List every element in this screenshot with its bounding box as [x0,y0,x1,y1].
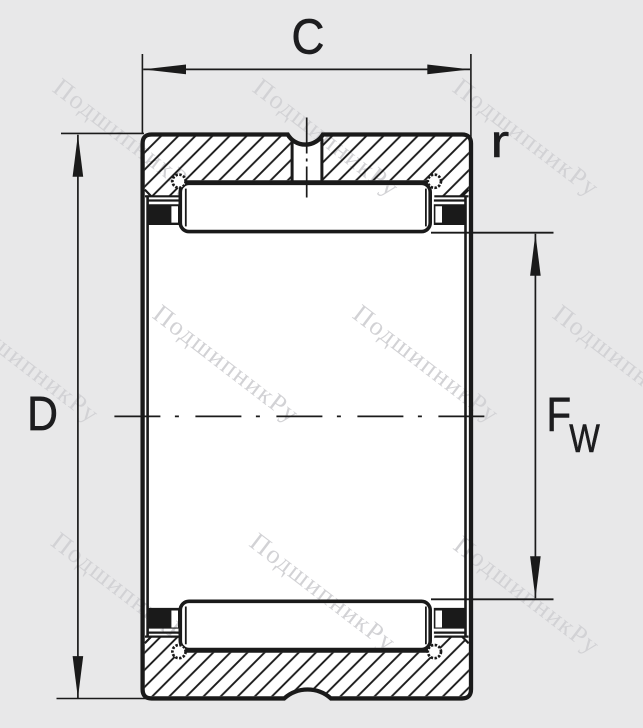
svg-text:D: D [27,387,58,441]
svg-text:r: r [491,116,510,167]
svg-text:F: F [547,389,572,442]
svg-text:C: C [292,10,325,65]
svg-text:W: W [569,416,600,461]
